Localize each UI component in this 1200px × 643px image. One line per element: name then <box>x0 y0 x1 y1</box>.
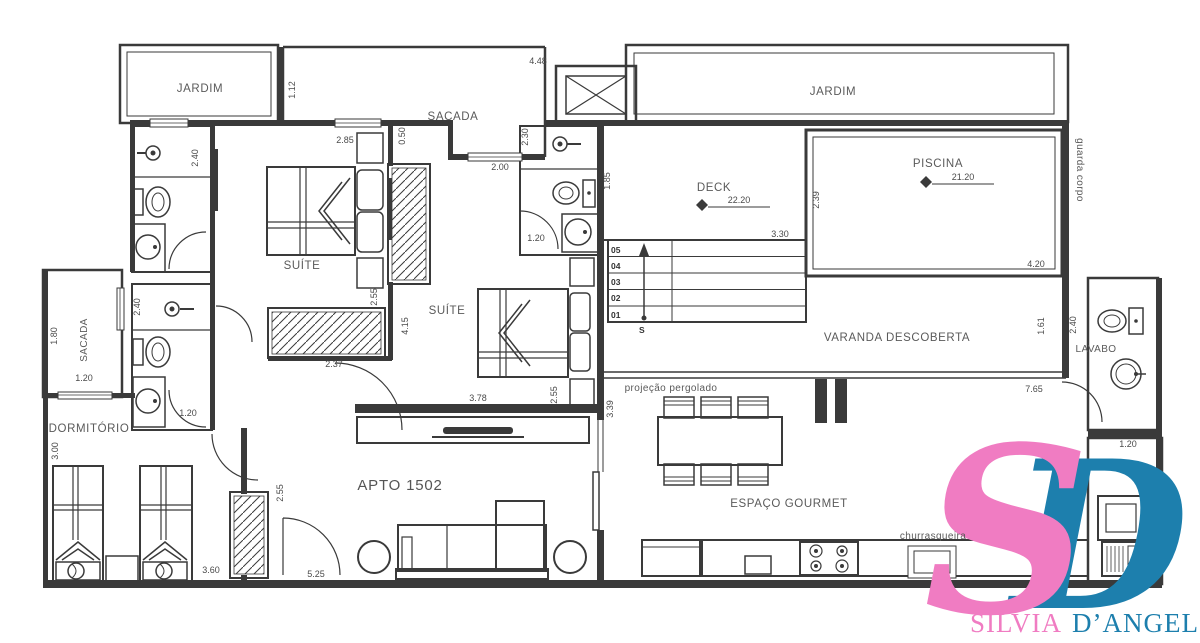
dimension-label: 3.78 <box>469 393 487 403</box>
stair-start-label: S <box>639 325 645 335</box>
dimension-label: 4.48 <box>529 56 547 66</box>
dimension-label: 1.20 <box>1119 439 1137 449</box>
dimension-label: 1.12 <box>287 81 297 99</box>
label-churrasqueira: churrasqueira <box>900 531 966 542</box>
sofa-icon <box>358 501 586 579</box>
dimension-label: 2.30 <box>520 128 530 146</box>
dimension-label: 2.55 <box>549 386 559 404</box>
logo-silvia-dangelo: D S SILVIA D’ANGELO <box>924 397 1200 643</box>
wardrobe-icon <box>230 164 430 578</box>
dimension-label: 3.30 <box>771 229 789 239</box>
sink-icon <box>133 377 165 427</box>
beds-dormitorio-icon <box>53 466 192 582</box>
stair-step-label: 05 <box>611 245 621 255</box>
dimension-label: 1.20 <box>179 408 197 418</box>
toilet-icon <box>1098 308 1143 334</box>
label-varanda: VARANDA DESCOBERTA <box>824 332 970 344</box>
dimension-label: 0.50 <box>397 127 407 145</box>
dimension-label: 2.00 <box>491 162 509 172</box>
label-jardim-left: JARDIM <box>177 83 223 95</box>
label-piscina: PISCINA <box>913 158 963 170</box>
bed-suite2-icon <box>478 258 594 407</box>
stair-step-label: 04 <box>611 261 621 271</box>
dimension-label: 2.37 <box>325 359 343 369</box>
logo-name-first: SILVIA <box>970 608 1062 638</box>
label-lavabo: LAVABO <box>1076 344 1117 355</box>
dimension-label: 2.55 <box>275 484 285 502</box>
dimension-label: 2.55 <box>369 288 379 306</box>
dimension-label: 1.20 <box>75 373 93 383</box>
bathroom3-fixtures <box>553 137 598 252</box>
label-deck: DECK <box>697 182 731 194</box>
logo-monogram-s: S <box>924 397 1090 643</box>
dimension-label: 1.20 <box>527 233 545 243</box>
toilet-icon <box>133 187 170 217</box>
dimension-label: 4.20 <box>1027 259 1045 269</box>
toilet-icon <box>553 180 595 207</box>
side-table-icon <box>554 541 586 573</box>
label-jardim-right: JARDIM <box>810 86 856 98</box>
label-deck-level: 22.20 <box>728 195 751 205</box>
label-apto: APTO 1502 <box>357 477 442 494</box>
dimension-label: 2.85 <box>336 135 354 145</box>
dimension-label: 1.85 <box>602 172 612 190</box>
dimension-label: 7.65 <box>1025 384 1043 394</box>
label-piscina-level: 21.20 <box>952 172 975 182</box>
dimension-label: 1.61 <box>1036 317 1046 335</box>
label-gourmet: ESPAÇO GOURMET <box>730 498 847 510</box>
label-pergolado: projeção pergolado <box>625 383 718 394</box>
label-sacada-left: SACADA <box>79 318 90 362</box>
label-dormitorio: DORMITÓRIO <box>49 422 130 435</box>
dimension-label: 3.00 <box>50 442 60 460</box>
dimension-label: 3.39 <box>605 400 615 418</box>
tv-console-icon <box>357 417 589 443</box>
dimension-label: 1.80 <box>49 327 59 345</box>
floor-plan-page: D S SILVIA D’ANGELO JARDIM SACADA JARDIM… <box>0 0 1200 643</box>
stair-step-label: 01 <box>611 310 621 320</box>
dimension-label: 2.39 <box>811 191 821 209</box>
dimension-label: 3.60 <box>202 565 220 575</box>
sink-icon <box>562 214 598 252</box>
stove-icon <box>800 542 858 575</box>
stairs-arrow-icon <box>639 243 649 321</box>
sink-icon <box>133 224 165 272</box>
side-table-icon <box>358 541 390 573</box>
label-guarda-corpo: guarda corpo <box>1074 138 1085 202</box>
dining-table-icon <box>658 397 782 485</box>
dimension-label: 5.25 <box>307 569 325 579</box>
dimension-label: 2.40 <box>132 298 142 316</box>
logo-name-last: D’ANGELO <box>1072 608 1200 638</box>
dimension-label: 2.40 <box>1068 316 1078 334</box>
level-marker-icon <box>696 176 994 211</box>
label-suite2: SUÍTE <box>429 304 466 317</box>
stair-step-label: 03 <box>611 277 621 287</box>
label-sacada-top: SACADA <box>428 111 479 123</box>
dimension-label: 2.40 <box>190 149 200 167</box>
label-suite1: SUÍTE <box>284 259 321 272</box>
stair-step-label: 02 <box>611 293 621 303</box>
toilet-icon <box>133 337 170 367</box>
tv-icon <box>443 427 513 434</box>
bathroom2-fixtures <box>132 302 212 427</box>
dimension-label: 4.15 <box>400 317 410 335</box>
floor-plan-drawing: D S SILVIA D’ANGELO JARDIM SACADA JARDIM… <box>0 0 1200 643</box>
sink-icon <box>1111 359 1146 389</box>
